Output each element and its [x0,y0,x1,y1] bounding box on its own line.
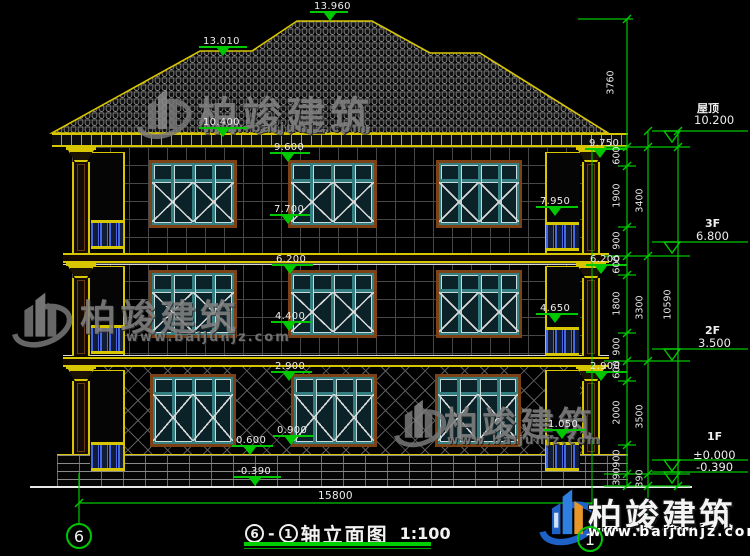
elevation-mark-text: 6.200 [276,254,306,265]
dimension-label: 390 [635,449,648,509]
dimension-label: 3760 [606,53,619,113]
watermark-url: www.baijunjz.com [447,433,602,447]
elevation-mark-text: 10.400 [203,117,240,128]
elevation-mark-triangle [556,431,568,439]
axis-bubble-6: 6 [66,523,92,549]
elevation-mark-triangle [285,437,297,445]
title-dash: - [268,524,275,543]
elevation-mark-text: 9.600 [274,142,304,153]
elevation-mark-triangle [594,150,606,158]
elevation-mark-triangle [283,373,295,381]
title-axis-end: 1 [279,524,298,543]
dimension-label: 10590 [663,275,676,335]
watermark-logo [391,394,449,451]
elevation-mark-triangle [217,129,229,137]
overall-width-dimension: 15800 [318,490,353,502]
dimension-label: 3400 [635,171,648,231]
cad-elevation-drawing: 柏竣建筑 www.baijunjz.com 柏竣建筑 www.baijunjz.… [0,0,750,556]
axis-number: 1 [585,530,595,549]
title-underline [244,542,431,546]
elevation-mark-triangle [282,216,294,224]
brand-url: www.baijunjz.com [588,524,750,540]
floor-value-2f: 3.500 [698,336,731,350]
elevation-mark-triangle [549,315,561,323]
elevation-mark-triangle [283,323,295,331]
axis-number: 6 [74,527,84,546]
elevation-mark-triangle [549,208,561,216]
elevation-mark-triangle [595,373,607,381]
elevation-mark-text: 0.900 [277,425,307,436]
title-underline-thin [244,548,431,549]
floor-value-3f: 6.800 [696,229,729,243]
elevation-mark-triangle [244,447,256,455]
watermark-url: www.baijunjz.com [126,330,291,345]
elevation-mark-text: 7.700 [274,204,304,215]
elevation-mark-text: 13.960 [314,1,351,12]
elevation-mark-triangle [595,266,607,274]
floor-value-roof: 10.200 [694,113,734,127]
axis-bubble-1: 1 [577,526,603,552]
elevation-mark-text: 13.010 [203,36,240,47]
elevation-mark-triangle [324,13,336,21]
elevation-mark-text: 2.900 [275,361,305,372]
dimension-label: 390 [612,447,625,507]
dimension-label: 3300 [635,278,648,338]
elevation-mark-text: 7.950 [540,196,570,207]
elevation-mark-text: -0.390 [237,466,271,477]
watermark-logo [8,286,76,352]
elevation-mark-triangle [284,266,296,274]
floor-value-1f-below: -0.390 [696,460,733,474]
floor-label-1f: 1F [707,430,722,443]
elevation-mark-triangle [282,154,294,162]
dimension-label: 3500 [635,387,648,447]
elevation-mark-triangle [217,48,229,56]
title-axis-start: 6 [245,524,264,543]
watermark-logo [133,83,195,143]
title-scale: 1:100 [400,524,451,543]
elevation-mark-text: 4.400 [275,311,305,322]
elevation-mark-triangle [249,478,261,486]
elevation-mark-text: 0.600 [236,435,266,446]
elevation-mark-text: 4.650 [540,303,570,314]
elevation-mark-text: 1.050 [548,419,578,430]
